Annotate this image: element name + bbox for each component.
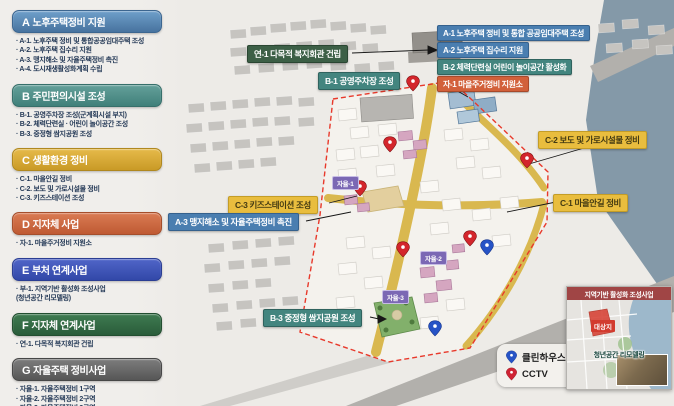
sidebar-section-e: E부처 연계사업 부-1. 지역기반 활성화 조성사업 (청년공간 리모델링) [12,258,182,304]
map-callout-c3: C-3 키즈스테이션 조성 [228,196,318,214]
building [278,236,295,246]
building [370,25,387,35]
sidebar-section-f: F지자체 연계사업 연-1. 다목적 복지회관 건립 [12,313,182,349]
building [210,101,227,111]
building [436,279,452,291]
sidebar-section-d: D지자체 사업 자-1. 마을주거정비 지원소 [12,212,182,248]
sidebar-section-a: A노후주택정비 지원 A-1. 노후주택 정비 및 통합공공임대주택 조성 A-… [12,10,182,75]
building [346,236,365,249]
list-item: 연-1. 다목적 복지회관 건립 [16,340,182,349]
building [236,300,253,310]
building [606,43,623,53]
section-header-c: C생활환경 정비 [12,148,162,171]
section-items: 자율-1. 자율주택정비 1구역 자율-2. 자율주택정비 2구역 자율-3. … [16,385,182,406]
pin-blue-icon [506,350,517,364]
section-code: A [22,17,30,29]
list-item: 자-1. 마을주거정비 지원소 [16,239,182,248]
building [310,19,327,29]
building [204,263,221,273]
list-item: A-2. 노후주택 집수리 지원 [16,46,182,55]
section-title: 생활환경 정비 [33,156,88,167]
building [336,148,355,161]
building [208,121,225,131]
building [238,159,255,169]
building [186,123,203,133]
building [256,137,273,147]
building [452,244,465,253]
inset-title: 지역기반 활성화 조성사업 [567,287,671,300]
building [372,246,391,259]
section-code: D [22,219,30,231]
list-item: C-1. 마을안길 정비 [16,175,182,184]
map-callout-c2: C-2 보도 및 가로시설물 정비 [538,131,647,149]
building [376,164,395,177]
section-title: 부처 연계사업 [32,266,87,277]
map-callout-ja1: 자-1 마을주거정비 지원소 [437,76,529,92]
building [360,145,379,158]
section-items: C-1. 마을안길 정비 C-2. 보도 및 가로시설물 정비 C-3. 키즈스… [16,175,182,203]
list-item: B-2. 체력단련실 · 어린이 놀이공간 조성 [16,120,182,129]
building [430,222,449,235]
market-building [360,94,414,122]
building [232,99,249,109]
building [350,126,369,139]
building [500,196,519,209]
building [250,26,267,36]
building [413,140,427,150]
building [472,208,491,221]
building [403,150,417,159]
building [260,157,277,167]
list-item: A-4. 도시재생활성화계획 수립 [16,65,182,74]
section-code: G [22,365,30,377]
section-items: 자-1. 마을주거정비 지원소 [16,239,182,248]
infographic-stage: A노후주택정비 지원 A-1. 노후주택 정비 및 통합공공임대주택 조성 A-… [0,0,674,406]
map-callout-b3: B-3 중정형 쌈지공원 조성 [263,309,362,327]
section-title: 자율주택 정비사업 [33,366,106,377]
list-item: 자율-2. 자율주택정비 2구역 [16,395,182,404]
section-header-a: A노후주택정비 지원 [12,10,162,33]
building [338,262,357,275]
building [336,296,355,309]
building [255,278,272,288]
building [290,21,307,31]
building [456,156,475,169]
building [446,298,465,311]
building [350,23,367,33]
building [278,136,295,146]
building [362,43,379,53]
building [632,39,649,49]
building [259,298,276,308]
building [212,303,229,313]
building [622,19,639,29]
section-code: E [22,265,29,277]
section-code: C [22,155,30,167]
building [656,45,673,55]
section-title: 지자체 연계사업 [31,321,95,332]
zone-badge-3: 자율-3 [382,290,409,304]
list-item: A-1. 노후주택 정비 및 통합공공임대주택 조성 [16,37,182,46]
building [648,25,665,35]
building [338,108,357,121]
section-header-f: F지자체 연계사업 [12,313,162,336]
map-callout-a1: A-1 노후주택 정비 및 통합 공공임대주택 조성 [437,25,590,41]
building [330,21,347,31]
building [252,117,269,127]
pin-red-icon [506,367,517,381]
sidebar-section-b: B주민편의시설 조성 B-1. 공영주차장 조성(군계획시설 부지) B-2. … [12,84,182,139]
building [234,139,251,149]
building [298,97,315,107]
section-title: 지자체 사업 [33,220,79,231]
zone-badge-2: 자율-2 [420,251,447,265]
building [446,260,459,270]
map-callout-a3: A-3 맹지해소 및 자율주택정비 촉진 [168,213,299,231]
map-callout-b1: B-1 공영주차장 조성 [318,72,400,90]
building [255,238,272,248]
building [398,131,413,141]
building [274,256,291,266]
section-code: B [22,91,30,103]
section-items: 연-1. 다목적 복지회관 건립 [16,340,182,349]
list-item: C-3. 키즈스테이션 조성 [16,194,182,203]
building [276,96,293,106]
list-item: 자율-1. 자율주택정비 1구역 [16,385,182,394]
building [251,258,268,268]
building [230,29,247,39]
list-item: C-2. 보도 및 가로시설물 정비 [16,185,182,194]
building [357,203,370,212]
building [240,318,257,328]
building [216,321,233,331]
legend-label: 클린하우스 [522,350,566,364]
list-item: A-3. 맹지해소 및 자율주택정비 촉진 [16,56,182,65]
building [424,293,438,303]
list-item: 부-1. 지역기반 활성화 조성사업 (청년공간 리모델링) [16,285,182,304]
inset-map: 대상지 청년공간 리모델링 [567,300,671,389]
list-item: B-1. 공영주차장 조성(군계획시설 부지) [16,111,182,120]
plan-legend-sidebar: A노후주택정비 지원 A-1. 노후주택 정비 및 통합공공임대주택 조성 A-… [0,0,182,406]
building [230,119,247,129]
sidebar-section-c: C생활환경 정비 C-1. 마을안길 정비 C-2. 보도 및 가로시설물 정비… [12,148,182,203]
building [364,276,383,289]
location-inset: 지역기반 활성화 조성사업 대상지 청년공간 리모델링 [566,286,672,390]
building [194,163,211,173]
building [420,180,439,193]
section-header-d: D지자체 사업 [12,212,162,235]
building [208,243,225,253]
section-header-g: G자율주택 정비사업 [12,358,162,381]
list-item: B-3. 중정형 쌈지공원 조성 [16,130,182,139]
building [230,47,247,57]
section-items: A-1. 노후주택 정비 및 통합공공임대주택 조성 A-2. 노후주택 집수리… [16,37,182,75]
section-title: 노후주택정비 지원 [33,18,106,29]
map-callout-stack: A-1 노후주택 정비 및 통합 공공임대주택 조성 A-2 노후주택 집수리 … [437,25,590,92]
building [298,117,315,127]
building [598,23,615,33]
building [258,63,275,73]
section-code: F [22,320,28,332]
inset-photo-label: 청년공간 리모델링 [569,350,669,360]
building [190,143,207,153]
map-callout-c1: C-1 마을안길 정비 [553,194,628,212]
building [188,103,205,113]
map-callout-yeon1: 연-1 다목적 복지회관 건립 [247,45,348,63]
building [216,161,233,171]
building [254,97,271,107]
building [282,296,299,306]
inset-area-label: 대상지 [591,320,615,332]
legend-label: CCTV [522,369,548,380]
building [232,240,249,250]
zone-badge-1: 자율-1 [332,176,359,190]
building [442,198,461,211]
building [470,138,489,151]
section-title: 주민편의시설 조성 [33,92,106,103]
building [234,65,251,75]
section-header-e: E부처 연계사업 [12,258,162,281]
section-items: 부-1. 지역기반 활성화 조성사업 (청년공간 리모델링) [16,285,182,304]
sidebar-section-g: G자율주택 정비사업 자율-1. 자율주택정비 1구역 자율-2. 자율주택정비… [12,358,182,406]
map-callout-b2: B-2 체력단련실 어린이 놀이공간 활성화 [437,59,572,75]
map-callout-a2: A-2 노후주택 집수리 지원 [437,42,529,58]
building [420,267,435,278]
building [270,23,287,33]
building [444,128,463,141]
building [208,283,225,293]
building [378,123,397,136]
building [232,280,249,290]
building [228,260,245,270]
building [492,234,511,247]
building [378,61,395,71]
section-items: B-1. 공영주차장 조성(군계획시설 부지) B-2. 체력단련실 · 어린이… [16,111,182,139]
building [274,116,291,126]
building [482,166,501,179]
building [212,141,229,151]
section-header-b: B주민편의시설 조성 [12,84,162,107]
